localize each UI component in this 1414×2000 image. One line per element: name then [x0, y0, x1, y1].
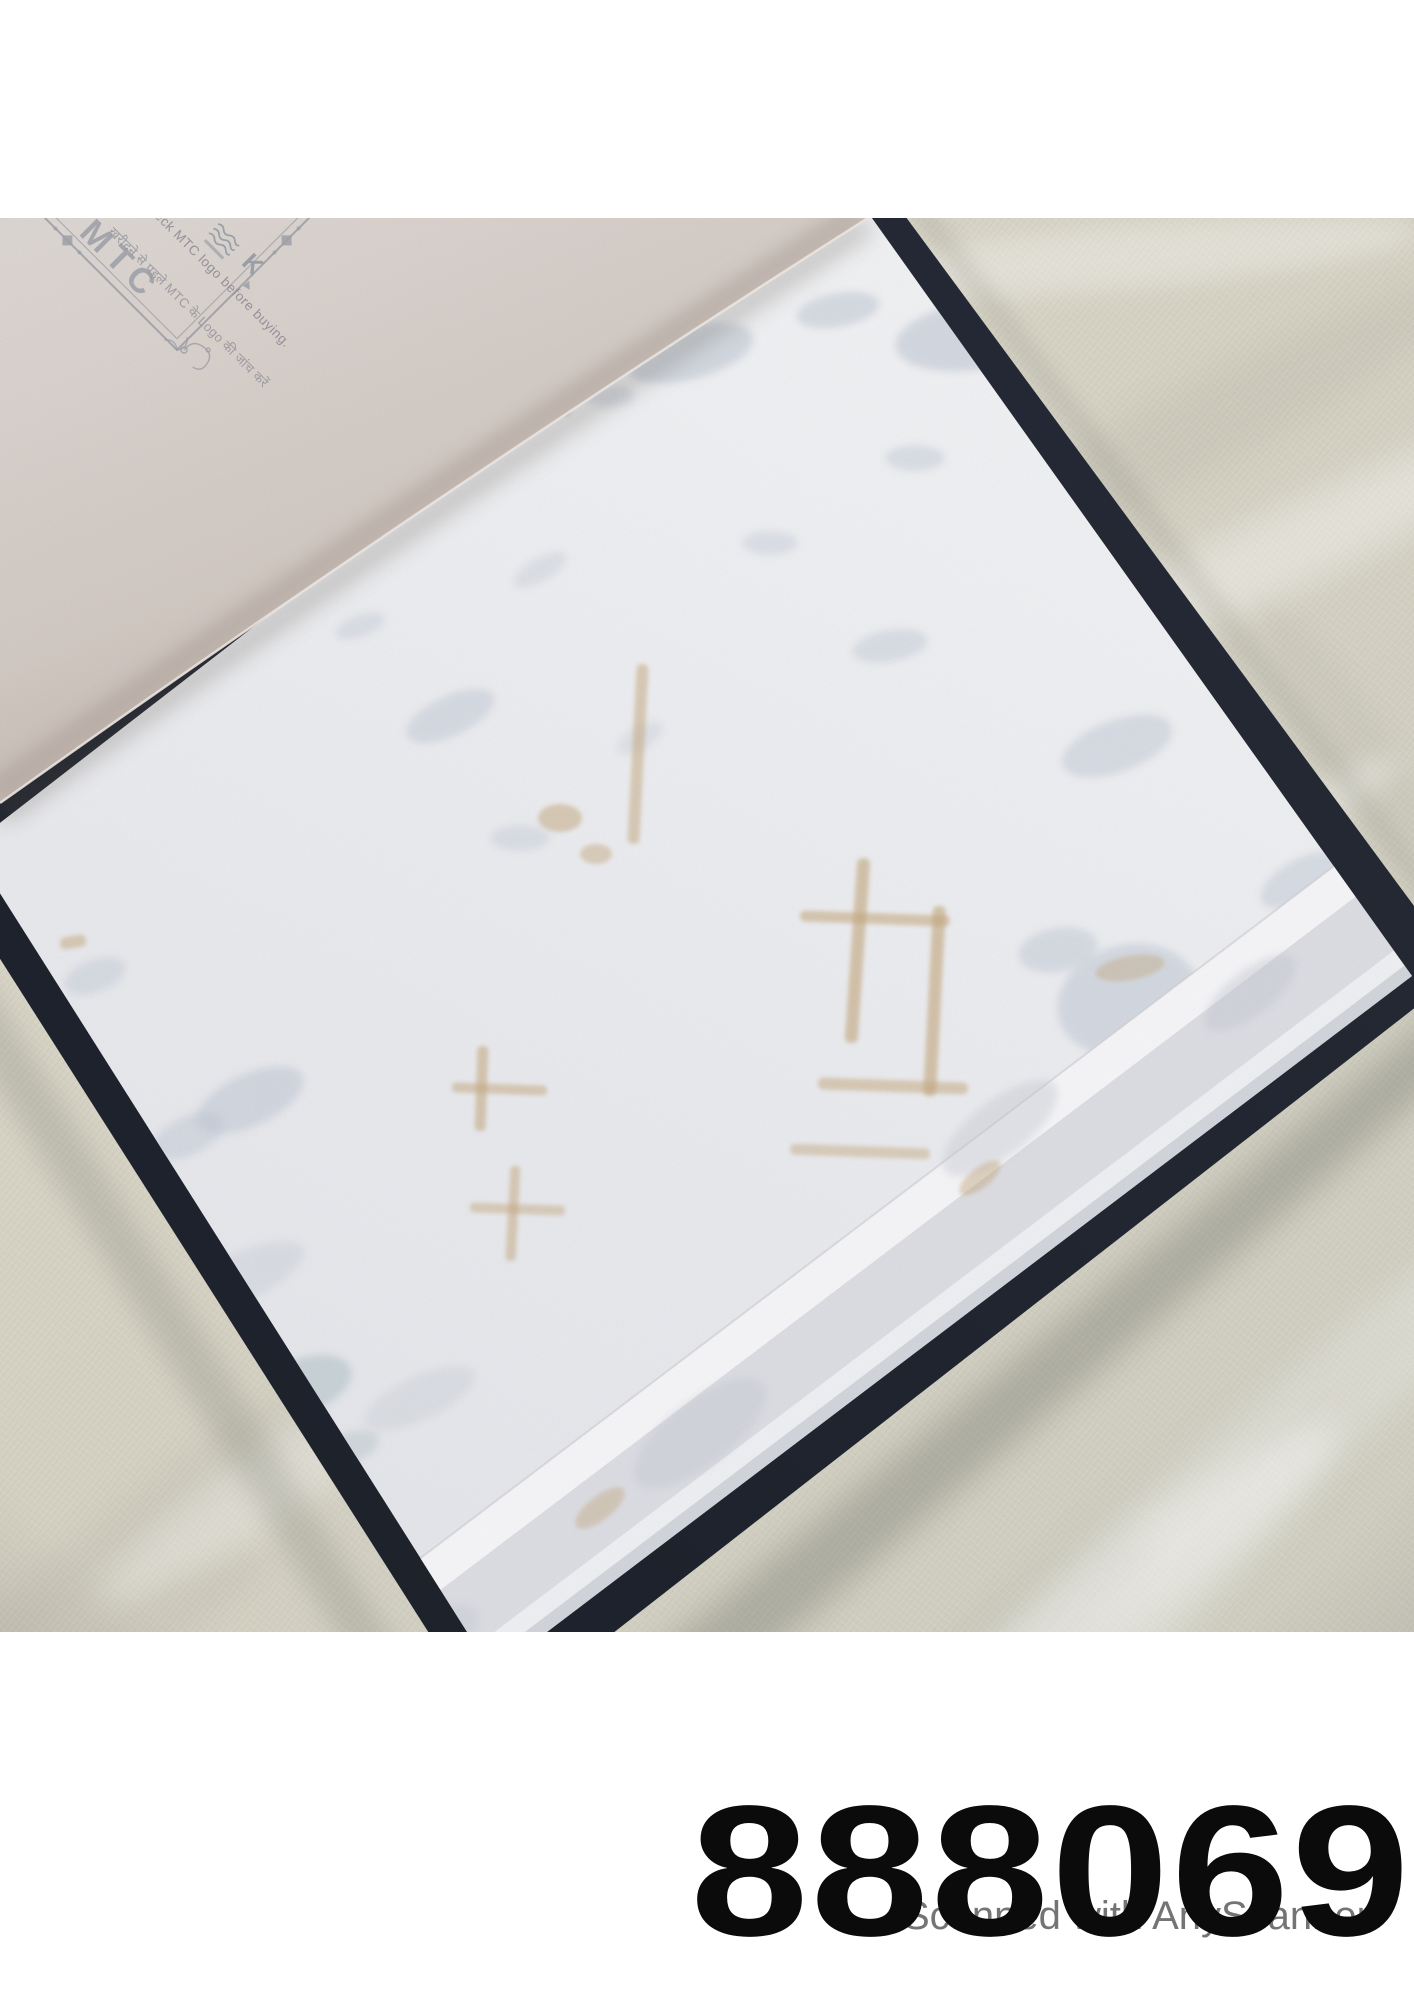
sample-number: 888069 — [691, 1779, 1412, 1965]
sample-book-photo: MTC खरीदने से पहले MTC के Logo की जांच क… — [0, 218, 1414, 1632]
photo-vignette — [0, 218, 1414, 1632]
scanned-photo-page: MTC खरीदने से पहले MTC के Logo की जांच क… — [0, 0, 1414, 2000]
